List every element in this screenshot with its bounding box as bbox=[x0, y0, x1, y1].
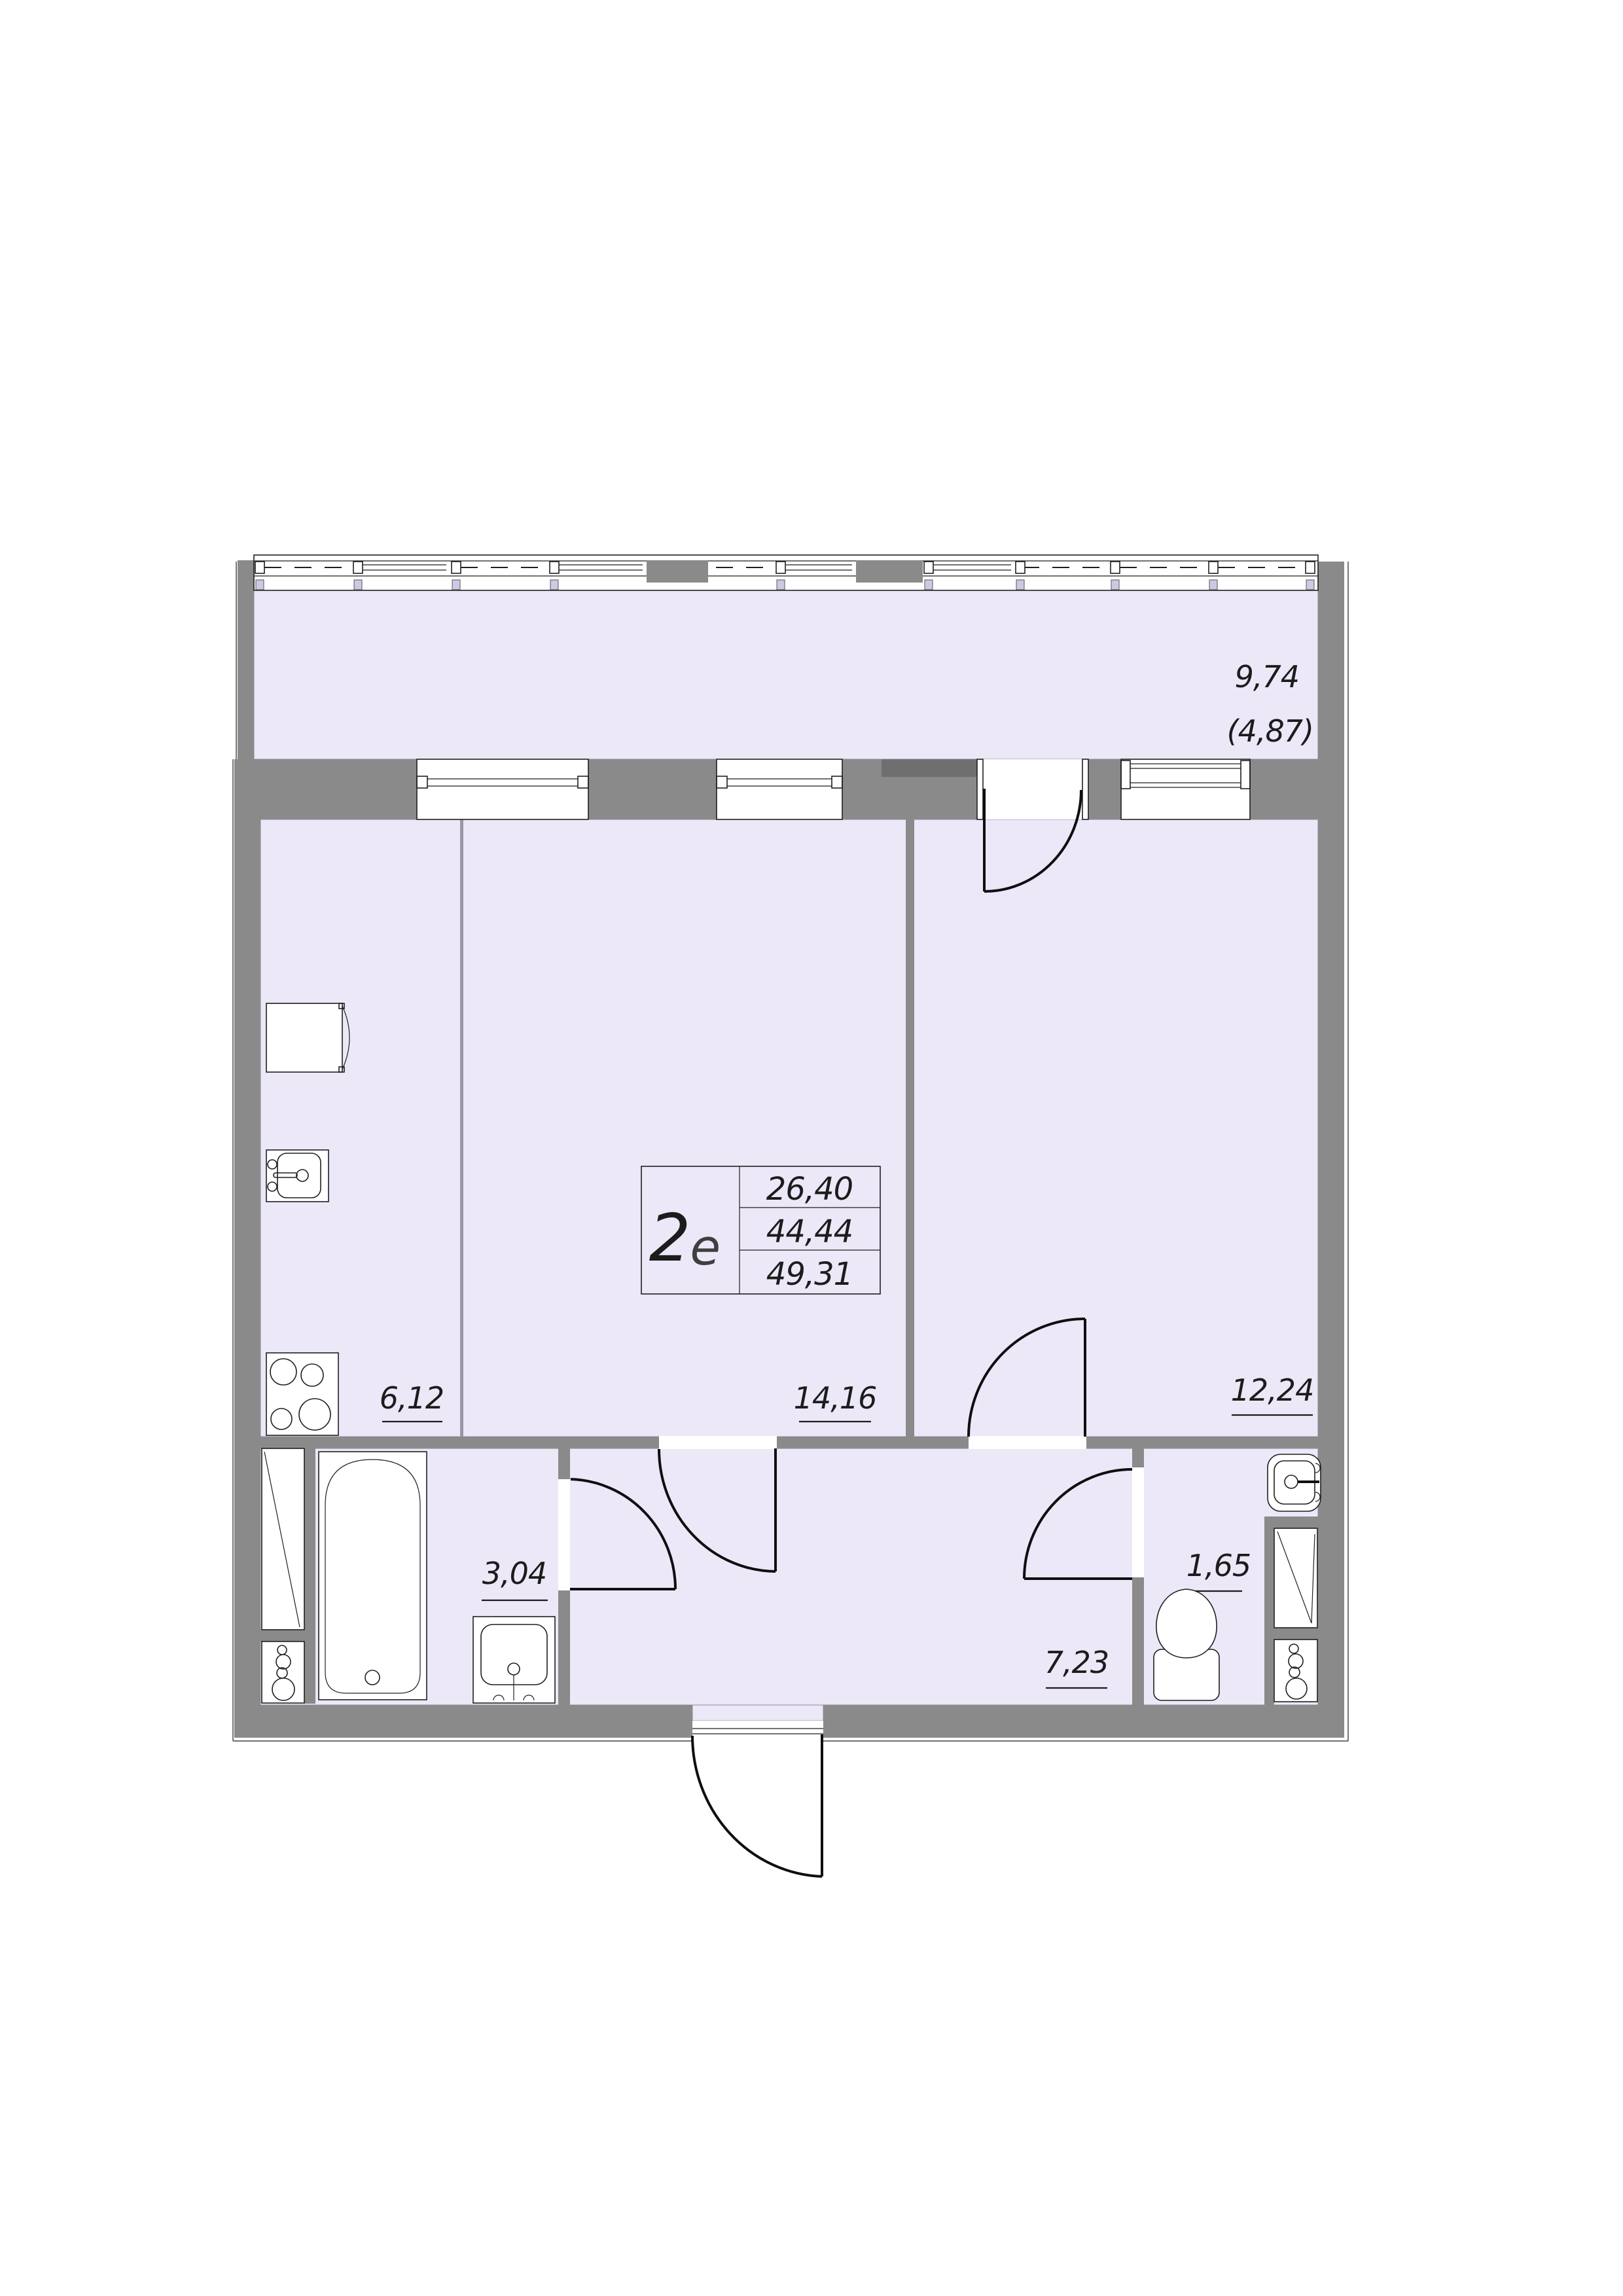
living-bedroom-partition bbox=[906, 819, 914, 1437]
kitchen-living-partition bbox=[460, 819, 463, 1437]
balcony-floor bbox=[254, 590, 1318, 759]
living-area-label: 14,16 bbox=[794, 1380, 877, 1416]
toilet-area-label: 1,65 bbox=[1186, 1548, 1251, 1583]
bedroom-window bbox=[1121, 759, 1250, 819]
bathtub-icon bbox=[319, 1452, 427, 1700]
kitchen-area-label: 6,12 bbox=[380, 1380, 444, 1416]
rooms-floor bbox=[260, 819, 1318, 1437]
balcony-left-wall bbox=[238, 560, 254, 759]
toilet-icon bbox=[1154, 1589, 1219, 1700]
entrance-door bbox=[692, 1721, 823, 1876]
left-outer-wall bbox=[234, 759, 260, 1738]
living-window bbox=[717, 759, 842, 819]
fridge-icon bbox=[266, 1003, 349, 1072]
kitchen-window bbox=[417, 759, 588, 819]
toilet-sink-icon bbox=[1268, 1454, 1321, 1511]
floor-plan: 2е 26,40 44,44 49,31 9,74 (4,87) 6,12 14… bbox=[0, 0, 1623, 2296]
balcony-reduced-area-label: (4,87) bbox=[1227, 713, 1313, 749]
right-outer-wall bbox=[1318, 562, 1344, 1738]
bedroom-area-label: 12,24 bbox=[1231, 1372, 1314, 1408]
area-row-1: 26,40 bbox=[766, 1171, 853, 1208]
kitchen-sink-icon bbox=[266, 1150, 329, 1202]
hallway-area-label: 7,23 bbox=[1044, 1645, 1109, 1680]
balcony-glazing bbox=[254, 555, 1318, 590]
right-shaft bbox=[1274, 1528, 1317, 1702]
stove-icon bbox=[266, 1353, 338, 1435]
bathroom-sink-icon bbox=[473, 1617, 555, 1703]
bottom-wall-left bbox=[234, 1705, 692, 1738]
entrance-floor-strip bbox=[692, 1705, 823, 1721]
area-row-2: 44,44 bbox=[766, 1213, 853, 1250]
left-shaft bbox=[262, 1448, 304, 1703]
bottom-wall-right bbox=[823, 1705, 1344, 1738]
area-row-3: 49,31 bbox=[766, 1256, 853, 1293]
balcony-area-label: 9,74 bbox=[1235, 659, 1299, 694]
bathroom-area-label: 3,04 bbox=[482, 1556, 546, 1591]
